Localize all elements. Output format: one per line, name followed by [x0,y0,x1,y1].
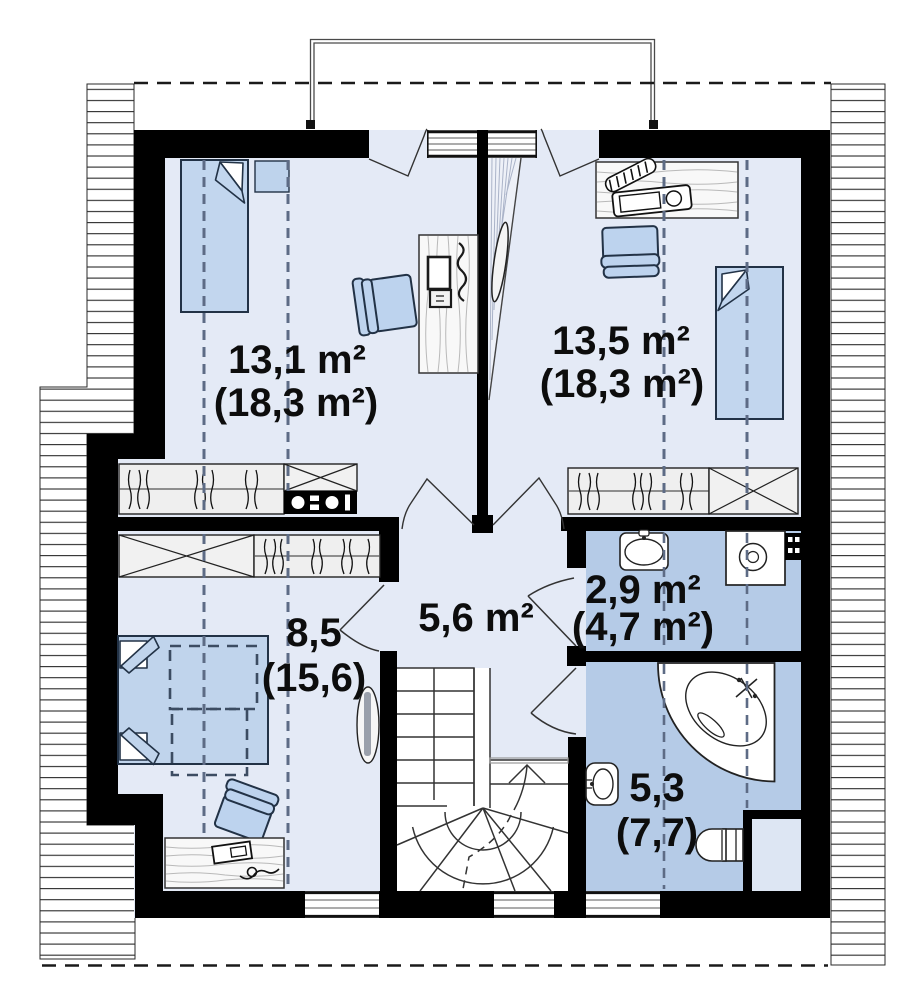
svg-text:(18,3 m²): (18,3 m²) [540,362,705,406]
svg-text:(15,6): (15,6) [262,656,367,700]
svg-text:8,5: 8,5 [286,611,342,655]
svg-text:5,3: 5,3 [629,766,685,810]
svg-text:13,5 m²: 13,5 m² [552,319,690,363]
svg-text:(18,3 m²): (18,3 m²) [214,381,379,425]
svg-text:(4,7 m²): (4,7 m²) [572,605,714,649]
svg-text:5,6 m²: 5,6 m² [418,596,534,640]
svg-text:13,1 m²: 13,1 m² [228,338,366,382]
svg-text:(7,7): (7,7) [616,811,698,855]
